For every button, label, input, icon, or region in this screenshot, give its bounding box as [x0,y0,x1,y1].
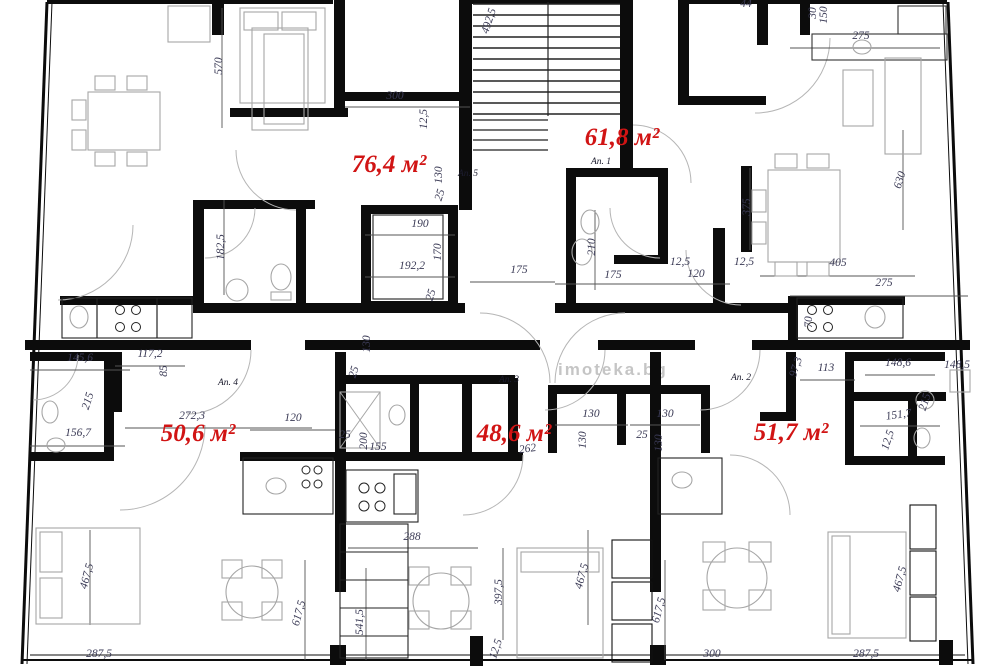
wall [620,0,633,118]
door-arc [463,455,523,515]
round-table [413,573,469,629]
wall [361,205,371,309]
dimension-label: 175 [510,264,528,276]
dimension-label: 287,5 [86,648,112,660]
wall [459,0,472,118]
dimension-label: 70 [803,316,815,328]
dimension-label: 287,5 [853,648,879,660]
chair [127,76,147,90]
area-label: 51,7 м² [754,419,829,446]
wall [617,385,626,445]
dimension-label: 288 [403,531,421,543]
wall [193,340,251,350]
sink-cabinet [394,474,416,514]
dimension-label: 156,7 [65,427,92,439]
wall [345,375,515,384]
wall [757,0,768,45]
dimension-label: 467,5 [573,562,591,590]
wall [25,340,193,350]
dining-table [768,170,840,262]
dimension-label: 117,2 [137,348,162,360]
burner [375,501,385,511]
coffee-table [843,70,873,126]
wall [305,340,540,350]
wall [752,340,795,350]
dimension-label: 570 [213,57,225,75]
wall [566,168,668,177]
burner [359,483,369,493]
dimension-label: 182,5 [215,234,227,260]
chair [775,262,797,276]
burner [132,323,141,332]
sink [865,306,885,328]
dimension-label: 617,5 [290,599,308,627]
burner [314,466,322,474]
dimension-label: 130 [433,166,445,184]
washing-machine [950,370,970,392]
wall [240,452,338,461]
door-arc [730,455,790,515]
dimension-label: 44 [740,0,752,10]
apartment-number: Ап. 2 [730,373,751,383]
area-label: 48,6 м² [476,420,552,447]
dimension-label: 12,5 [670,256,690,268]
chair [222,602,242,620]
area-label: 76,4 м² [352,151,427,178]
wardrobe [910,551,936,595]
dimension-label: 148,6 [885,357,911,369]
sink [853,40,871,54]
dimension-label: 210 [586,238,598,256]
dimension-label: 467,5 [78,562,96,590]
dimension-label: 170 [432,243,444,261]
chair [95,76,115,90]
wall [296,205,306,310]
chair [72,130,86,150]
wall [330,645,346,665]
toilet [389,405,405,425]
outer-wall [948,2,973,664]
dimension-label: 130 [577,431,589,449]
armchair [168,6,210,42]
chair [72,100,86,120]
wall [230,108,348,117]
door-arc [610,208,660,258]
burner [302,466,310,474]
wall [795,340,970,350]
round-table [707,548,767,608]
dimension-label: 300 [702,648,721,660]
chair [807,262,829,276]
burner [375,483,385,493]
wall [345,92,471,101]
wall [448,205,458,309]
wall [193,303,465,313]
wall [939,640,953,665]
chair [749,590,771,610]
sink [672,472,692,488]
burner [359,501,369,511]
pillow [244,12,278,30]
kitchen-counter [658,458,722,514]
wall [345,452,523,461]
dimension-label: 145,6 [67,352,93,364]
dimension-label: 275 [852,30,870,42]
burner [116,323,125,332]
wall [598,340,695,350]
door-arc [58,225,133,300]
wall [614,255,668,264]
chair [807,154,829,168]
dimension-label: 405 [829,257,847,269]
wall [678,0,689,100]
outer-wall [943,2,968,664]
wall [845,352,854,464]
pillow [40,578,62,618]
dimension-label: 200 [358,432,370,450]
dimension-label: 25 [636,429,648,441]
sink [266,478,286,494]
dimension-label: 12,5 [418,109,430,129]
wardrobe [612,540,652,578]
dimension-label: 25 [424,288,439,303]
dimension-label: 541,5 [354,609,366,635]
dimension-label: 215 [80,391,97,411]
wall [30,452,114,461]
floor-plan: imoteka.bg 57030012,5492,5182,5190170192… [0,0,1000,666]
wardrobe [910,597,936,641]
dimension-label: 25 [433,188,448,203]
burner [116,306,125,315]
dimension-label: 375 [741,198,753,217]
toilet-tank [271,292,291,300]
burner [824,323,833,332]
pillow [282,12,316,30]
dimension-label: 85 [158,365,170,377]
wall [459,118,472,210]
chair [752,190,766,212]
chair [262,602,282,620]
dimension-label: 630 [892,170,909,190]
dimension-label: 617,5 [650,596,668,624]
chair [409,567,429,585]
kitchen-column [340,524,408,658]
toilet [42,401,58,423]
dimension-label: 12,5 [734,256,754,268]
wall [361,205,458,214]
wall [462,378,472,456]
pillow [40,532,62,572]
apartment-number: Ап. 4 [217,378,238,388]
wall [713,228,725,308]
sink [70,306,88,328]
outer-wall [22,2,47,664]
dimension-label: 120 [687,268,705,280]
chair [703,590,725,610]
dimension-label: 275 [875,277,893,289]
bed [517,548,603,658]
dining-table [88,92,160,150]
wall [193,200,204,310]
dimension-label: 130 [656,408,674,420]
wall [410,380,419,458]
dimension-label: 175 [604,269,622,281]
wall [334,0,345,112]
kitchen-cabinet [898,6,946,34]
burner [314,480,322,488]
burner [302,480,310,488]
door-arc [205,208,255,258]
wall [548,385,710,394]
dimension-label: 12,5 [487,637,505,660]
dimension-label: 130 [653,434,665,452]
dimension-label: 397,5 [493,579,505,606]
dimension-label: 300 [385,90,404,102]
dimension-label: 130 [582,408,600,420]
toilet [271,264,291,290]
wall [470,636,483,666]
wall [795,296,905,305]
chair [775,154,797,168]
wall [845,456,945,465]
apartment-number: Ап. 5 [457,169,478,179]
area-label: 61,8 м² [585,124,660,151]
dimension-label: 120 [284,412,302,424]
washbasin [226,279,248,301]
wall [555,303,795,313]
chair [752,222,766,244]
wall [566,168,576,303]
area-label: 50,6 м² [161,420,236,447]
dimension-label: 12,5 [879,428,897,451]
washbasin [47,438,65,452]
dimension-label: 150 [818,6,830,24]
chair [127,152,147,166]
wall [701,385,710,453]
pillow [832,536,850,634]
dimension-label: 190 [411,218,429,230]
apartment-number: Ап. 3 [498,375,519,385]
floor-plan-drawing: 57030012,5492,5182,5190170192,2251302517… [0,0,1000,666]
dimension-label: 130 [361,335,373,353]
dimension-label: 155 [369,441,387,453]
wall [678,96,766,105]
door-arc [755,38,830,113]
dimension-label: 113 [818,362,835,374]
apartment-number: Ап. 1 [590,157,611,167]
dimension-label: 25 [339,429,351,441]
burner [824,306,833,315]
round-table [226,566,278,618]
wardrobe [612,624,652,662]
dimension-label: 467,5 [891,565,909,593]
wardrobe [910,505,936,549]
wardrobe [612,582,652,620]
burner [808,306,817,315]
dimension-label: 492,5 [479,7,498,36]
wall [112,352,122,412]
dimension-label: 148,5 [944,359,970,371]
burner [132,306,141,315]
toilet [581,210,599,234]
wall [658,168,668,260]
chair [95,152,115,166]
dimension-label: 192,2 [399,260,425,272]
kitchen-counter [812,34,947,60]
chair [409,611,429,629]
